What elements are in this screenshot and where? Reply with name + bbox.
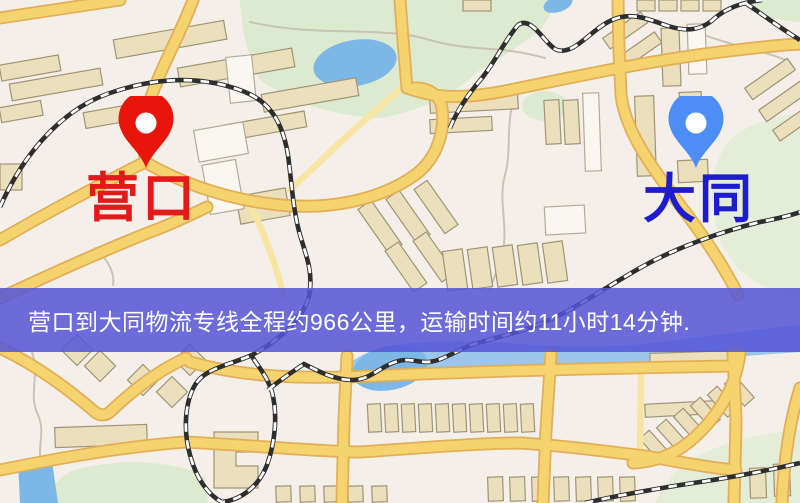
route-info-banner: 营口到大同物流专线全程约966公里，运输时间约11小时14分钟. — [0, 288, 800, 352]
map-view: 营口 大同 营口到大同物流专线全程约966公里，运输时间约11小时14分钟. — [0, 0, 800, 503]
origin-pin-icon[interactable] — [115, 96, 177, 170]
origin-label: 营口 — [86, 172, 198, 225]
map-canvas[interactable] — [0, 0, 800, 503]
destination-pin-icon[interactable] — [665, 96, 727, 170]
route-info-text: 营口到大同物流专线全程约966公里，运输时间约11小时14分钟. — [0, 303, 690, 337]
destination-label: 大同 — [643, 173, 755, 226]
